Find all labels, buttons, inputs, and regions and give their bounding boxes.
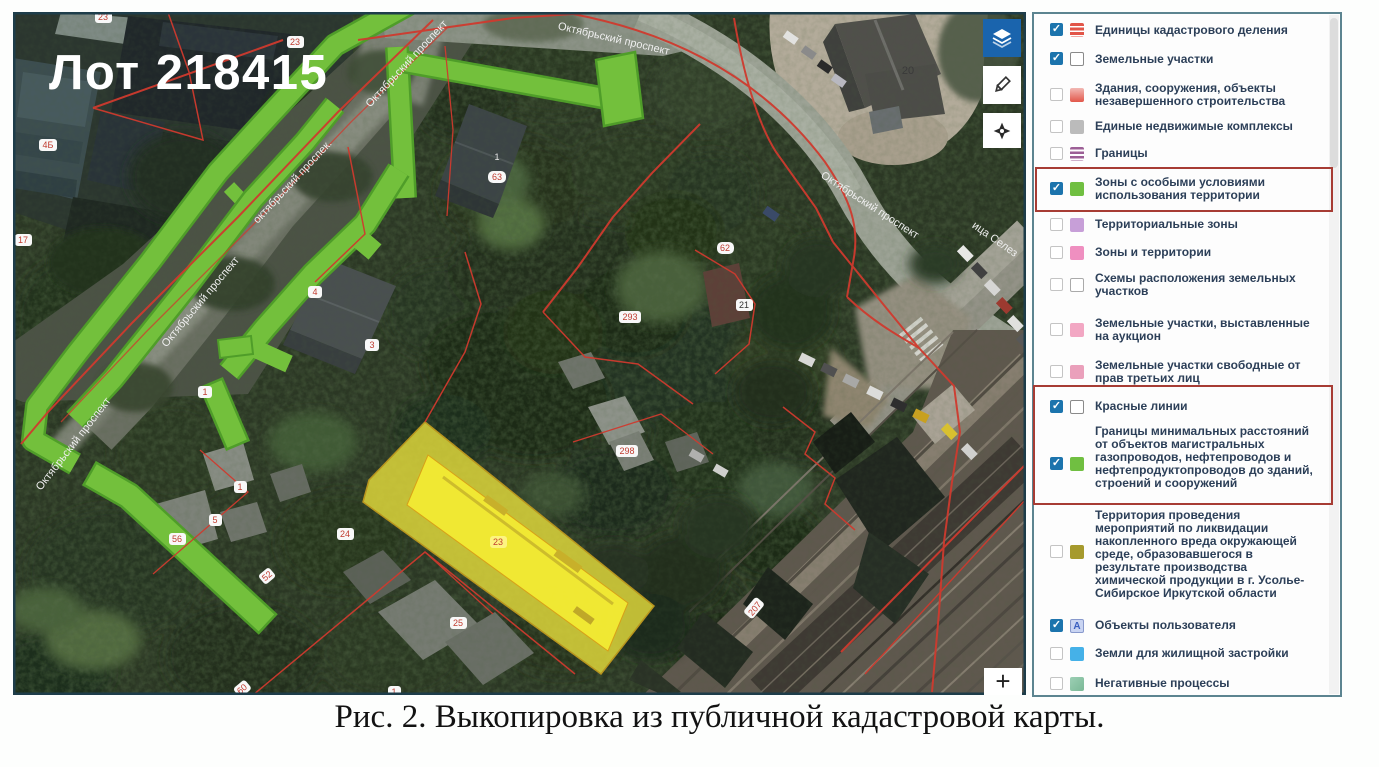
svg-text:1: 1 bbox=[202, 387, 207, 397]
svg-text:1: 1 bbox=[237, 482, 242, 492]
svg-text:5: 5 bbox=[212, 515, 217, 525]
svg-text:17: 17 bbox=[18, 235, 28, 245]
svg-text:4Б: 4Б bbox=[43, 140, 54, 150]
svg-text:3: 3 bbox=[369, 340, 374, 350]
svg-text:24: 24 bbox=[340, 529, 350, 539]
svg-text:4: 4 bbox=[312, 287, 317, 297]
svg-text:21: 21 bbox=[739, 300, 749, 310]
svg-text:56: 56 bbox=[172, 534, 182, 544]
svg-text:23: 23 bbox=[493, 537, 503, 547]
svg-text:293: 293 bbox=[622, 312, 637, 322]
svg-text:298: 298 bbox=[619, 446, 634, 456]
svg-text:1: 1 bbox=[494, 152, 499, 162]
svg-text:25: 25 bbox=[453, 618, 463, 628]
svg-text:20: 20 bbox=[902, 65, 914, 77]
svg-text:63: 63 bbox=[492, 172, 502, 182]
svg-text:62: 62 bbox=[720, 243, 730, 253]
